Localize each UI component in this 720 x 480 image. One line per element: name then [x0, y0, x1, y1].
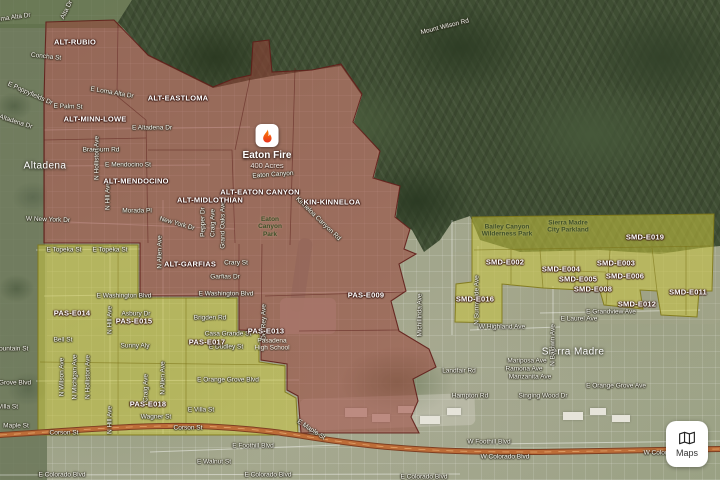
- street-label: Alta Dr: [59, 0, 74, 21]
- park-label: EatonCanyonPark: [258, 216, 282, 238]
- fire-acreage-label: 400 Acres: [243, 161, 292, 170]
- street-label: N Hill Ave: [106, 306, 113, 334]
- street-label: N Allen Ave: [156, 235, 163, 268]
- street-label: Mariposa Ave: [507, 357, 546, 364]
- evacuation-warning-zone-label: PAS-E015: [116, 318, 152, 327]
- street-label: W New York Dr: [26, 215, 70, 224]
- street-label: E Orange Grove Blvd: [197, 376, 259, 383]
- street-label: New York Dr: [159, 215, 196, 232]
- evacuation-warning-zone-label: PAS-E018: [130, 401, 166, 410]
- street-label: W Foothill Blvd: [467, 438, 510, 445]
- evacuation-order-zone-label: ALT-EATON CANYON: [220, 189, 299, 198]
- street-label: N Wilson Ave: [58, 358, 65, 397]
- fire-marker[interactable]: Eaton Fire 400 Acres: [243, 124, 292, 170]
- street-label: Craig Ave: [142, 374, 149, 402]
- evacuation-warning-zone-label: SMD-E011: [669, 289, 707, 298]
- street-label: Corson St: [174, 424, 203, 431]
- street-label: Morada Pl: [122, 207, 152, 214]
- evacuation-warning-zone-label: SMD-E006: [606, 273, 644, 282]
- street-label: E Villa St: [188, 406, 214, 413]
- evacuation-warning-zone-label: SMD-E005: [559, 276, 597, 285]
- street-label: E Poppyfields Dr: [6, 81, 53, 108]
- street-label: Casa Grande St: [205, 330, 252, 337]
- poi-label: PasadenaHigh School: [254, 338, 289, 353]
- street-label: W Highland Ave: [479, 323, 525, 330]
- evacuation-warning-zone-label: PAS-E014: [54, 310, 90, 319]
- evacuation-order-zone-label: ALT-EASTLOMA: [148, 95, 209, 104]
- street-label: E Orange Grove Ave: [586, 382, 646, 389]
- evacuation-order-zone-label: PAS-E013: [248, 328, 284, 337]
- maps-button-label: Maps: [676, 448, 698, 458]
- street-label: E Colorado Blvd: [39, 471, 86, 478]
- street-label: E Walnut St: [197, 458, 231, 465]
- evacuation-warning-zone-label: SMD-E003: [597, 260, 635, 269]
- street-label: E Colorado Blvd: [401, 473, 448, 480]
- street-label: E Maple St: [296, 418, 327, 442]
- evacuation-order-zone-label: PAS-E009: [348, 292, 384, 301]
- maps-button[interactable]: Maps: [666, 421, 708, 467]
- street-label: Crary St: [224, 259, 248, 266]
- street-label: Singing Wood Dr: [518, 392, 567, 399]
- evacuation-warning-zone-label: SMD-E016: [456, 296, 494, 305]
- street-label: Craig Ave: [209, 209, 216, 237]
- fire-icon[interactable]: [256, 124, 279, 147]
- street-label: E Colorado Blvd: [245, 471, 292, 478]
- map-icon: [678, 430, 696, 446]
- street-label: E Topeka St: [47, 246, 82, 253]
- evacuation-warning-zone-label: SMD-E012: [618, 301, 656, 310]
- street-label: Loma Alta Dr: [0, 12, 31, 25]
- street-label: E Washington Blvd: [199, 290, 254, 297]
- street-label: Brigden Rd: [194, 314, 227, 321]
- street-label: Braeburn Rd: [83, 146, 120, 153]
- evacuation-order-zone-label: ALT-GARFIAS: [164, 261, 216, 270]
- evacuation-warning-zone-label: SMD-E008: [574, 286, 612, 295]
- street-label: Michillinda Ave: [416, 294, 423, 337]
- evacuation-warning-zone-label: SMD-E002: [486, 259, 524, 268]
- evacuation-warning-zone-label: SMD-E004: [542, 266, 580, 275]
- evacuation-order-zone-label: ALT-MENDOCINO: [103, 178, 168, 187]
- street-label: Eaton Canyon: [252, 170, 294, 180]
- satellite-map[interactable]: AltadenaSierra MadreMount Wilson RdLoma …: [0, 0, 720, 480]
- street-label: W Altadena Dr: [0, 111, 33, 131]
- park-label: Sierra MadreCity Parkland: [547, 220, 589, 235]
- street-label: E Altadena Dr: [132, 124, 172, 131]
- street-label: E Washington Blvd: [97, 292, 152, 299]
- street-label: Manzanita Ave: [509, 373, 552, 380]
- street-label: E Laurel Ave: [561, 315, 598, 322]
- evacuation-order-zone-label: KIN-KINNELOA: [304, 199, 361, 208]
- street-label: Bell St: [54, 336, 73, 343]
- evacuation-order-zone-label: ALT-MIDLOTHIAN: [177, 197, 243, 206]
- street-label: Hampton Rd: [452, 392, 489, 399]
- street-label: N Holliston Ave: [84, 355, 91, 399]
- street-label: Wagner St: [141, 413, 171, 420]
- fire-name-label: Eaton Fire: [243, 150, 292, 161]
- evacuation-warning-zone-label: SMD-E019: [626, 234, 664, 243]
- park-label: Bailey CanyonWilderness Park: [482, 224, 533, 239]
- street-label: Garfias Dr: [210, 273, 240, 280]
- street-label: Landfair Rd: [442, 367, 476, 374]
- street-label: Villa St: [0, 403, 18, 410]
- street-label: E Loma Alta Dr: [90, 86, 134, 101]
- street-label: Corson St: [50, 429, 79, 436]
- street-label: Grand Oaks Ave: [219, 201, 226, 249]
- street-label: N Baldwin Ave: [549, 324, 556, 366]
- street-label: Maple St: [3, 422, 29, 429]
- street-label: E Mendocino St: [105, 161, 151, 168]
- street-label: E Topeka St: [93, 246, 128, 253]
- street-label: Sunny Aly: [121, 342, 150, 349]
- street-label: N Hill Ave: [106, 406, 113, 434]
- evacuation-order-zone-label: ALT-MINN-LOWE: [64, 116, 127, 125]
- street-label: N Allen Ave: [159, 361, 166, 394]
- street-label: Pepper Dr: [199, 207, 206, 237]
- street-label: E Foothill Blvd: [232, 442, 274, 449]
- street-label: Concha St: [31, 52, 62, 63]
- street-label: W Colorado Blvd: [481, 453, 530, 460]
- evacuation-order-zone-label: ALT-RUBIO: [54, 39, 96, 48]
- street-label: Grove Blvd: [0, 379, 31, 386]
- street-label: Mount Wilson Rd: [420, 17, 470, 36]
- map-labels: AltadenaSierra MadreMount Wilson RdLoma …: [0, 0, 720, 480]
- street-label: E Palm St: [53, 103, 82, 111]
- evacuation-warning-zone-label: PAS-E017: [189, 339, 225, 348]
- street-label: Ramona Ave: [505, 365, 542, 372]
- street-label: N Holliston Ave: [93, 136, 100, 180]
- place-label: Altadena: [24, 160, 67, 172]
- street-label: Mountain St: [0, 345, 28, 352]
- street-label: N Michigan Ave: [71, 354, 78, 399]
